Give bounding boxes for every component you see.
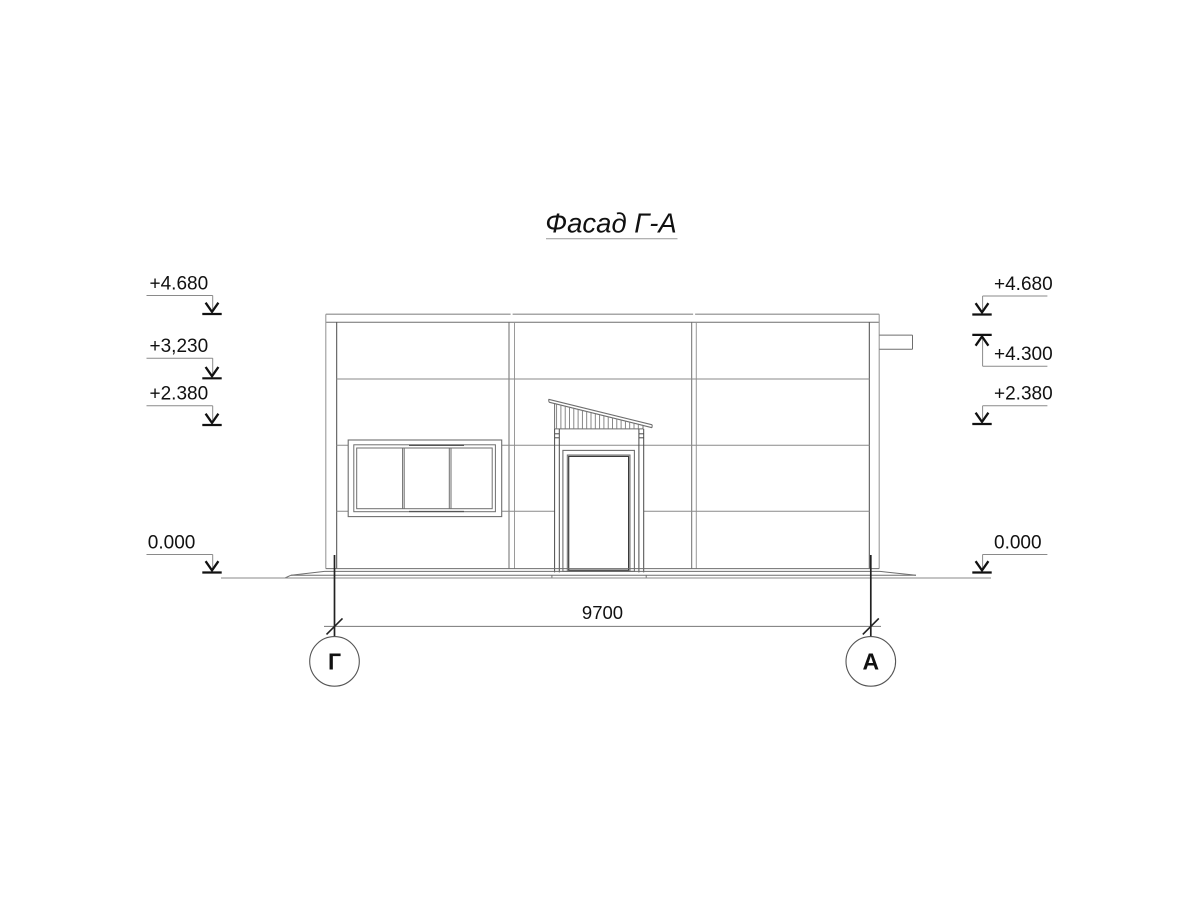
svg-text:+3,230: +3,230 bbox=[150, 336, 209, 357]
svg-text:Г: Г bbox=[328, 649, 341, 675]
svg-text:+4.300: +4.300 bbox=[994, 344, 1053, 365]
svg-text:0.000: 0.000 bbox=[148, 532, 196, 553]
svg-text:+2.380: +2.380 bbox=[150, 384, 209, 405]
svg-text:+2.380: +2.380 bbox=[994, 384, 1053, 405]
svg-text:+4.680: +4.680 bbox=[150, 273, 209, 294]
svg-text:+4.680: +4.680 bbox=[994, 274, 1053, 295]
svg-text:0.000: 0.000 bbox=[994, 532, 1042, 553]
svg-text:9700: 9700 bbox=[582, 602, 623, 623]
svg-text:Фасад Г-А: Фасад Г-А bbox=[545, 208, 677, 239]
svg-text:А: А bbox=[862, 649, 879, 675]
